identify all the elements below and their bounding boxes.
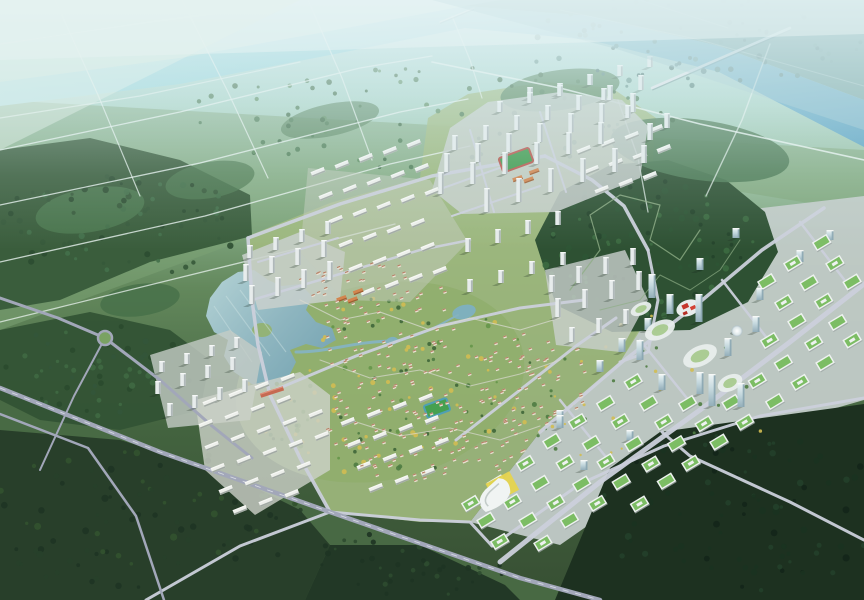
tree [401,302,405,306]
tower-roof [192,395,197,396]
tree [554,395,556,397]
tower-roof [597,360,604,361]
tree [739,256,742,259]
tree [185,537,191,543]
tower-roof [569,327,574,328]
tree [32,464,36,468]
tower-shaded-side [586,289,588,308]
tree [342,538,346,542]
tree [579,454,581,456]
tree [645,365,647,367]
tree [370,380,375,385]
tree [34,333,39,338]
tree [421,558,426,563]
tree [744,470,747,473]
tree [743,565,749,571]
tree [371,324,375,328]
tree [70,348,75,353]
tree [191,260,195,264]
tower-shaded-side [613,280,615,299]
tree [64,331,68,335]
tree [170,270,174,274]
tree [768,545,773,550]
tree [422,572,426,576]
tree [34,374,39,379]
tree [673,547,678,552]
tree [232,555,238,561]
tower-roof [167,403,172,404]
tree [801,527,808,534]
tree [788,459,792,463]
tower-roof [217,387,222,388]
tree [421,321,425,325]
tower-shaded-side [163,361,165,372]
tree [654,370,657,373]
tower-shaded-side [234,357,236,370]
tree [383,582,388,587]
tree [487,369,490,372]
tree [379,394,382,397]
tree [125,346,131,352]
tower-roof [549,275,554,276]
tree [170,534,177,541]
tower-shaded-side [305,269,307,288]
tree [55,391,58,394]
tree [193,499,197,503]
tree [85,409,89,413]
tower-roof [609,280,614,281]
tree [119,324,124,329]
tree [621,448,623,450]
tower-roof [636,271,641,272]
tree [117,409,122,414]
tree [642,551,648,557]
tree [522,420,526,424]
tree [339,416,343,420]
tree [693,431,696,434]
tree [377,454,381,458]
tree [759,507,766,514]
tree [751,569,757,575]
tree [580,360,583,363]
tree [550,389,553,392]
masterplan-canvas [0,0,864,600]
tower-roof [637,340,644,341]
tree [246,525,253,532]
tree [678,543,684,549]
tree [163,555,167,559]
tree [767,442,771,446]
tree [682,559,686,563]
tree [747,449,751,453]
tree [176,561,180,565]
tree [341,308,345,312]
tree [254,529,259,534]
tower-shaded-side [600,318,602,333]
tree [371,540,376,545]
tree [360,559,364,563]
tower-roof [645,318,652,319]
tree [742,502,747,507]
tree [65,251,70,256]
tower-shaded-side [702,258,704,270]
tree [102,262,105,265]
tower-roof [234,337,239,338]
tree [211,510,218,517]
tree [3,364,8,369]
tree [57,401,63,407]
tree [817,453,823,459]
tree [703,443,708,448]
tree [76,563,80,567]
tower-shaded-side [562,415,564,428]
tree [141,479,145,483]
tower-roof [560,252,565,253]
tower-shaded-side [573,327,575,342]
tree [485,318,488,321]
tree [456,404,459,407]
tree [717,404,720,407]
tree [632,521,637,526]
tree [745,385,749,389]
tower-roof [557,410,564,411]
tree [71,368,76,373]
tree [801,485,807,491]
tower-shaded-side [602,360,604,372]
tree [137,492,141,496]
tower-roof [180,373,185,374]
tree [390,308,394,312]
tree [826,480,832,486]
tree [688,264,692,268]
tree [342,469,347,474]
tree [704,556,710,562]
tree [337,457,340,460]
tower-roof [649,274,656,275]
tree [678,265,683,270]
tree [455,587,459,591]
tree [773,504,779,510]
tree [843,477,849,483]
tower-shaded-side [213,345,215,356]
tree [321,338,325,342]
tree [551,425,554,428]
tree [843,506,850,513]
tree [129,517,135,523]
tree [543,262,550,269]
tree [405,418,408,421]
tree [388,407,392,411]
tower-roof [529,261,534,262]
tower-roof [269,256,274,257]
tree [105,267,110,272]
tower-roof [159,361,164,362]
tree [771,530,778,537]
tower-shaded-side [702,372,704,394]
tree [780,554,785,559]
tower-shaded-side [559,298,561,317]
tree [787,552,791,556]
tree [385,592,389,596]
tree [759,429,762,432]
tree [67,558,73,564]
tree [517,338,520,341]
tree [98,380,104,386]
tree [123,450,127,454]
tower-roof [697,258,704,259]
tower-roof [243,264,248,265]
tree [130,562,134,566]
tree [44,575,49,580]
tree [158,463,163,468]
tree [143,338,149,344]
tree [93,484,97,488]
tree [379,567,382,570]
tree [563,357,566,360]
tower-roof [275,277,280,278]
tree [115,583,121,589]
tree [650,315,653,318]
tree [163,501,167,505]
tree [532,402,537,407]
tree [325,550,331,556]
tree [711,255,714,258]
tree [857,463,864,470]
tree [529,361,532,364]
tree [716,263,720,267]
tower-shaded-side [607,257,609,274]
tower-shaded-side [159,381,161,394]
tree [127,260,130,263]
tree [781,544,786,549]
tree [427,359,430,362]
tree [96,358,101,363]
tree [395,562,400,567]
tree [353,450,357,454]
tree [817,543,822,548]
tree [108,466,115,473]
tower-shaded-side [246,379,248,392]
tree [814,550,819,555]
tree [97,398,102,403]
tree [487,429,492,434]
tree [357,432,360,435]
tree [111,354,116,359]
tree [97,374,103,380]
tree [411,568,416,573]
tower-shaded-side [221,387,223,400]
tree [149,488,154,493]
tree [705,479,711,485]
tower-roof [555,298,560,299]
tree [376,319,380,323]
tree [142,352,148,358]
tree [772,441,775,444]
tree [104,520,108,524]
tree [453,441,458,446]
tower-roof [797,250,804,251]
tree [298,513,302,517]
tree [521,411,524,414]
tower-shaded-side [184,373,186,386]
tree [331,325,334,328]
tree [138,370,142,374]
tree [720,514,724,518]
tree [752,494,756,498]
tree [400,549,404,553]
tree [95,413,100,418]
tree [197,492,202,497]
tree [46,342,50,346]
tower-roof [623,309,628,310]
tree [369,366,373,370]
tower-shaded-side [758,316,760,332]
tree [492,429,496,433]
tower-roof [230,357,235,358]
tower-shaded-side [502,270,504,283]
tower-shaded-side [802,250,804,262]
tree [25,522,28,525]
tree [298,508,302,512]
tower-roof [627,430,634,431]
tree [406,345,410,349]
tree [369,557,373,561]
tree [152,512,157,517]
tree [754,565,758,569]
tower-shaded-side [533,261,535,274]
tree [392,368,396,372]
tree [74,257,77,260]
tree [232,499,238,505]
tree [323,543,328,548]
tower-shaded-side [654,274,656,298]
tree [709,566,713,570]
tower-shaded-side [209,365,211,378]
tree [64,385,70,391]
tree [386,380,390,384]
tree [170,342,176,348]
tree [612,379,615,382]
tree [94,576,99,581]
tree [479,356,484,361]
tree [49,366,53,370]
tree [190,523,196,529]
tree [405,369,408,372]
tree [801,571,805,575]
tree [730,447,734,451]
tree [396,305,400,309]
tree [396,466,401,471]
tree [156,259,160,263]
tree [89,579,94,584]
tower-roof [697,372,704,373]
tree [852,474,859,481]
tree [109,495,112,498]
tower-shaded-side [273,256,275,273]
tree [389,429,392,432]
tree [36,551,43,558]
tree [678,512,681,515]
tower-shaded-side [564,252,566,265]
tree [548,370,552,374]
tree [129,382,135,388]
tree [343,327,347,331]
tree [14,547,18,551]
tree [843,554,850,561]
tower-shaded-side [730,338,732,356]
tree [101,495,108,502]
tree [334,548,337,551]
tower-roof [242,379,247,380]
tree [94,552,98,556]
tower-roof [184,353,189,354]
tree [737,557,742,562]
tree [389,574,393,578]
tower-shaded-side [586,460,588,470]
tree [396,430,400,434]
tree [34,523,41,530]
tree [709,491,714,496]
tree [121,505,126,510]
roundabout [98,331,112,345]
tree [564,423,566,425]
tree [708,546,711,549]
tower-roof [619,338,626,339]
tree [619,553,624,558]
tree [1,502,8,509]
tree [116,553,122,559]
tree [124,373,129,378]
tree [127,367,132,372]
tree [40,397,43,400]
tree [144,251,150,257]
tree [427,342,431,346]
tower-roof [696,294,703,295]
tree [93,384,98,389]
tower-shaded-side [196,395,198,408]
tree [447,593,450,596]
tree [777,564,782,569]
tree [432,346,436,350]
tree [838,543,844,549]
tree [550,395,553,398]
tree [704,255,710,261]
tree [320,563,323,566]
tower-shaded-side [279,277,281,296]
tower-shaded-side [627,309,629,324]
tree [432,358,435,361]
tree [64,364,68,368]
tree [399,398,403,402]
tree [421,347,425,351]
tree [393,448,396,451]
tower-roof [327,261,332,262]
tower-shaded-side [634,248,636,265]
tree [226,539,233,546]
tower-roof [659,374,666,375]
tree [455,384,458,387]
tower-roof [596,318,601,319]
tree [410,579,414,583]
tower-shaded-side [553,275,555,292]
tree [554,447,558,451]
tower-roof [757,288,764,289]
tree [40,369,43,372]
tree [449,388,454,393]
tree [493,395,496,398]
tree [437,567,442,572]
tree [471,581,474,584]
